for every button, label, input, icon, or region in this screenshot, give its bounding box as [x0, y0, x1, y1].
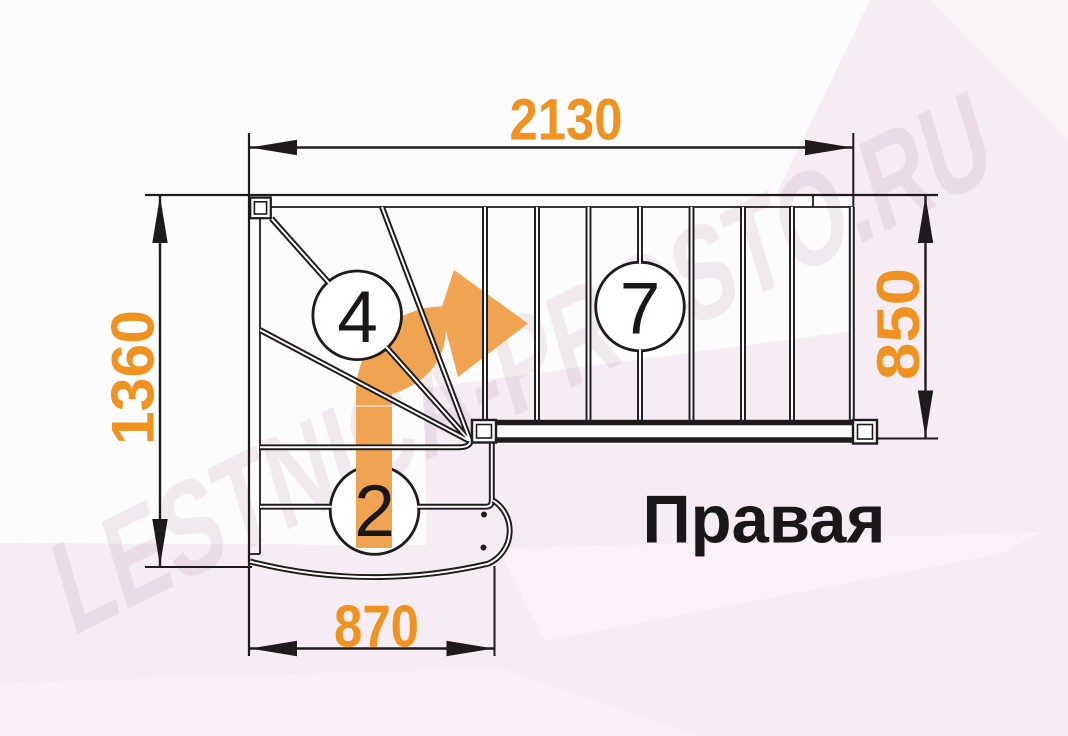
svg-text:2130: 2130 [510, 88, 623, 153]
svg-text:4: 4 [337, 277, 378, 358]
svg-text:7: 7 [620, 269, 661, 350]
svg-text:2: 2 [354, 471, 395, 552]
svg-text:1360: 1360 [100, 310, 167, 445]
svg-text:870: 870 [334, 594, 419, 660]
svg-text:Правая: Правая [643, 482, 886, 558]
svg-text:850: 850 [865, 268, 932, 380]
